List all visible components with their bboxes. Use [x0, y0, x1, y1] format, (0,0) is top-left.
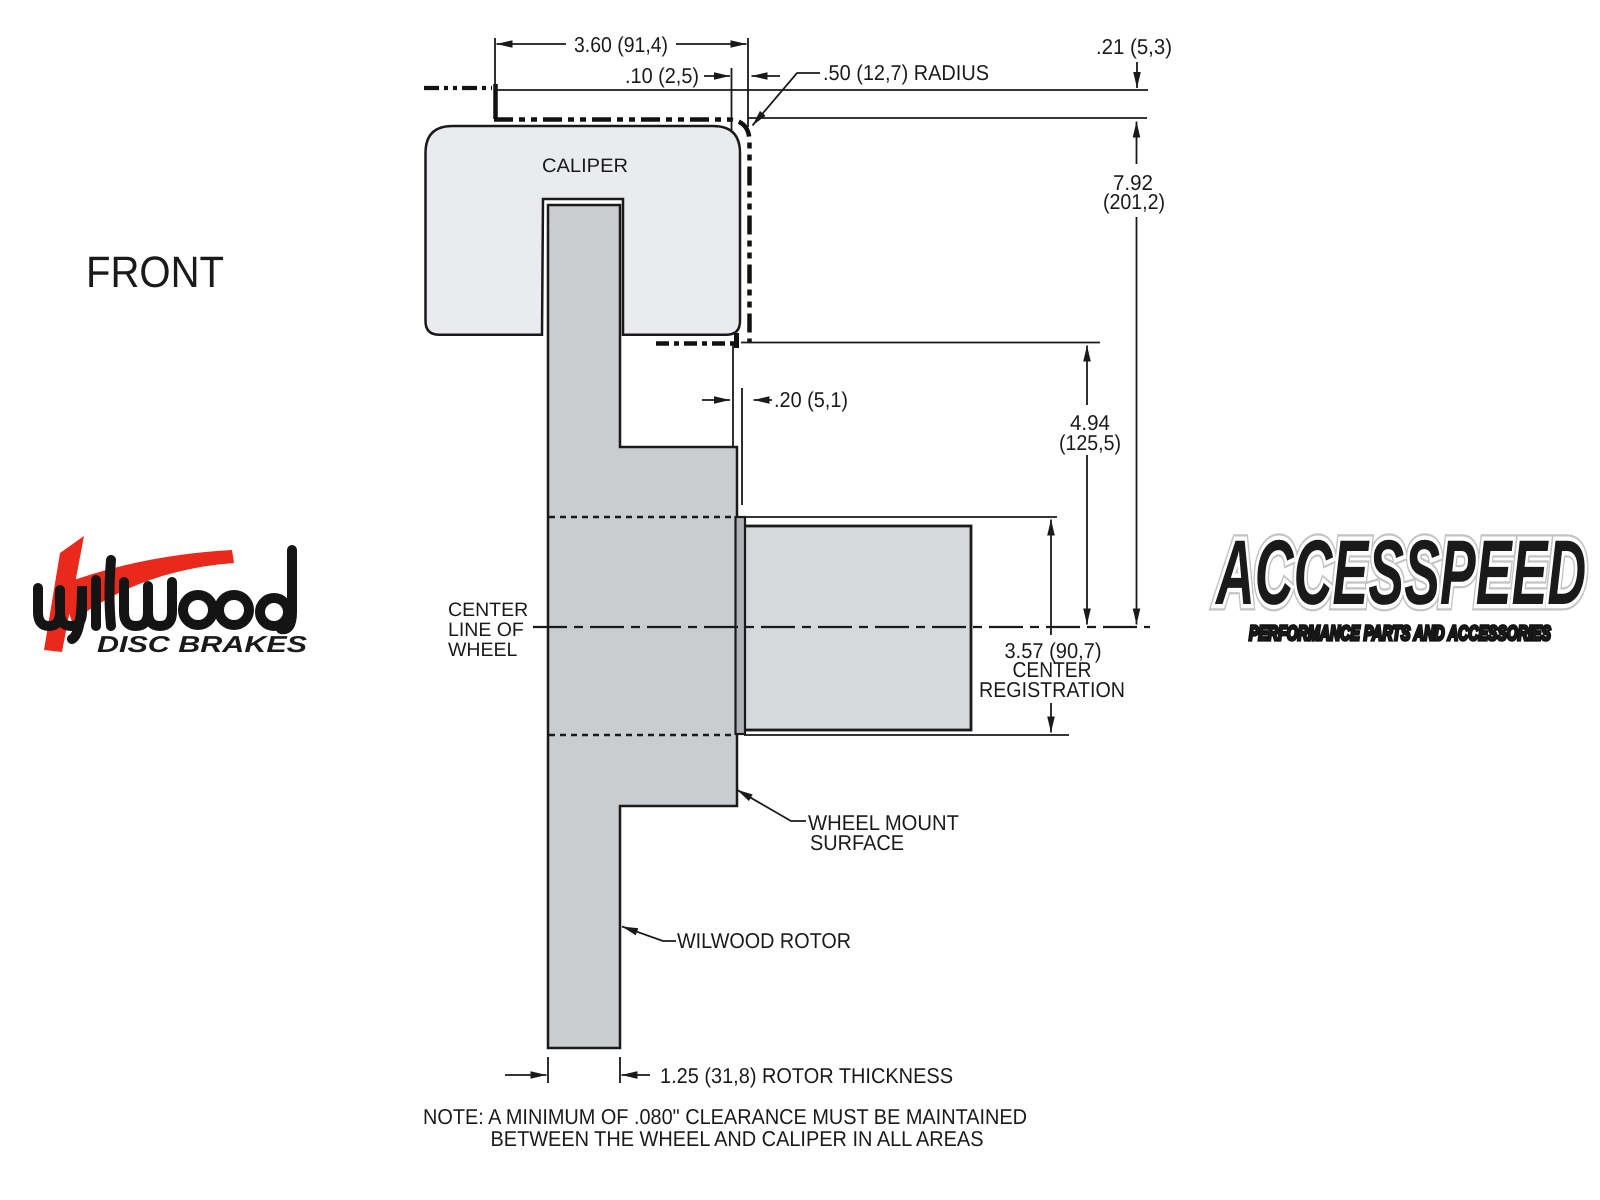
svg-text:(201,2): (201,2) — [1103, 190, 1165, 214]
svg-text:BETWEEN THE WHEEL AND CALIPER: BETWEEN THE WHEEL AND CALIPER IN ALL ARE… — [491, 1127, 984, 1151]
svg-text:CALIPER: CALIPER — [542, 155, 628, 177]
svg-text:NOTE: A MINIMUM OF .080" CLEAR: NOTE: A MINIMUM OF .080" CLEARANCE MUST … — [423, 1105, 1027, 1129]
svg-text:DISC BRAKES: DISC BRAKES — [97, 631, 308, 657]
svg-text:ACCESSPEED: ACCESSPEED — [1215, 522, 1586, 624]
svg-text:WHEEL: WHEEL — [448, 639, 518, 661]
svg-text:.50 (12,7) RADIUS: .50 (12,7) RADIUS — [823, 61, 989, 85]
svg-text:.10 (2,5): .10 (2,5) — [625, 64, 699, 88]
svg-text:1.25 (31,8) ROTOR THICKNESS: 1.25 (31,8) ROTOR THICKNESS — [660, 1064, 953, 1088]
svg-text:REGISTRATION: REGISTRATION — [979, 678, 1125, 702]
svg-text:FRONT: FRONT — [86, 248, 224, 297]
svg-text:.21 (5,3): .21 (5,3) — [1096, 35, 1172, 59]
svg-text:CENTER: CENTER — [448, 599, 528, 621]
svg-text:SURFACE: SURFACE — [810, 831, 904, 855]
svg-text:WILWOOD ROTOR: WILWOOD ROTOR — [677, 929, 851, 953]
svg-text:PERFORMANCE PARTS AND ACCESSOR: PERFORMANCE PARTS AND ACCESSORIES — [1249, 622, 1551, 645]
svg-text:LINE OF: LINE OF — [448, 619, 524, 641]
svg-text:3.60 (91,4): 3.60 (91,4) — [574, 33, 668, 57]
svg-text:.20 (5,1): .20 (5,1) — [774, 388, 848, 412]
svg-text:(125,5): (125,5) — [1059, 431, 1121, 455]
